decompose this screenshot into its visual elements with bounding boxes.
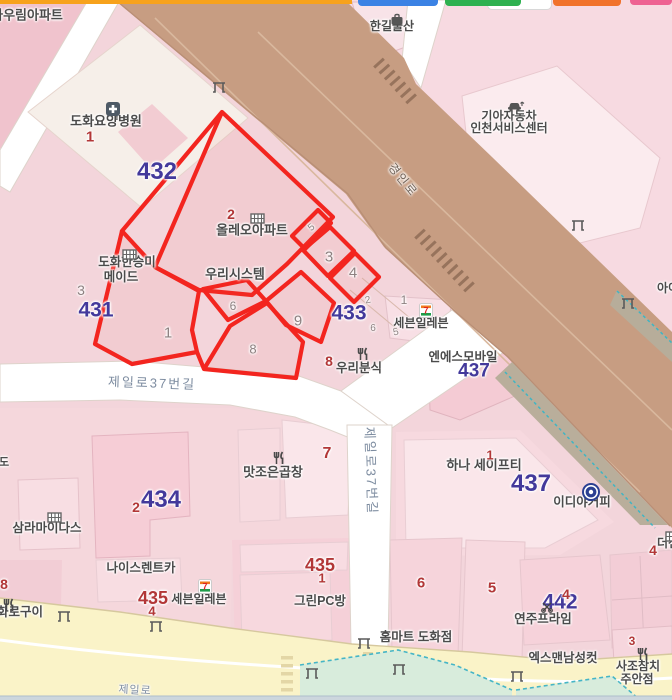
homemart-dohwa[interactable]: 홈마트 도화점	[380, 631, 452, 644]
block-434: 434	[141, 488, 181, 512]
bldg-4-435: 4	[148, 605, 155, 618]
matjoeun-gopchang[interactable]: 맛조은곱창	[243, 466, 303, 479]
road-gyeongin: 경인로	[386, 161, 420, 199]
road-jeil37-h: 제일로37번길	[108, 375, 197, 391]
green-pc-bang[interactable]: 그린PC방	[294, 595, 346, 608]
map-canvas[interactable]: 나우림아파트한길물산도화요양병원기아자동차인천서비스센터올레오아파트우리시스템도…	[0, 0, 672, 700]
maid[interactable]: 메이드	[104, 271, 139, 284]
bldg-2-olleo: 2	[227, 207, 235, 221]
parcel-6-small: 6	[370, 324, 376, 334]
bldg-2-434: 2	[132, 500, 140, 514]
block-433: 433	[331, 303, 366, 324]
bldg-4-442: 4	[562, 587, 570, 601]
bldg-3-sajo: 3	[629, 635, 636, 647]
kia-motors-line2[interactable]: 인천서비스센터	[470, 122, 547, 134]
sajo-chamchi-line2[interactable]: 주안점	[620, 673, 653, 685]
road-jeil37-v: 제일로37번길	[363, 427, 379, 516]
seven-eleven-south[interactable]: 세븐일레븐	[171, 593, 226, 605]
bldg-1-hospital: 1	[86, 130, 94, 145]
block-431: 431	[78, 300, 113, 321]
bldg-1-hana: 1	[486, 449, 493, 462]
svg-text:7: 7	[202, 582, 207, 592]
parcel-2-small: 2	[364, 296, 372, 307]
bldg-6: 6	[417, 576, 425, 591]
parcel-3-431: 3	[77, 283, 85, 297]
bldg-8-bunsik: 8	[325, 354, 333, 368]
parcel-1: 1	[164, 326, 172, 341]
parcel-8: 8	[249, 343, 256, 356]
block-432: 432	[137, 160, 177, 184]
samra-midas[interactable]: 삼라마이다스	[12, 522, 81, 535]
parcel-1-small: 1	[401, 294, 408, 306]
do-partial[interactable]: 도	[0, 458, 9, 469]
olleo-apartment[interactable]: 올레오아파트	[216, 224, 288, 237]
bldg-8-edge: 8	[0, 577, 8, 591]
xman-mens-cut[interactable]: 엑스맨남성컷	[528, 652, 597, 665]
bldg-1-435: 1	[318, 572, 325, 585]
block-437-a: 437	[458, 362, 490, 381]
bldg-4-thejen: 4	[649, 543, 657, 557]
parcel-4: 4	[349, 266, 357, 281]
parcel-5-small: 5	[392, 328, 400, 339]
ai-partial[interactable]: 아이	[657, 282, 672, 294]
road-jeil-partial: 제일로	[118, 685, 152, 698]
map-labels-layer: 나우림아파트한길물산도화요양병원기아자동차인천서비스센터올레오아파트우리시스템도…	[0, 0, 672, 700]
parcel-9: 9	[294, 314, 302, 329]
woori-system[interactable]: 우리시스템	[205, 268, 265, 281]
yeonju-prime[interactable]: 연주프라임	[514, 613, 572, 626]
sajo-chamchi-line1[interactable]: 사조참치	[616, 660, 660, 672]
bldg-5: 5	[488, 581, 496, 596]
block-437-b: 437	[511, 472, 551, 496]
woori-bunsik[interactable]: 우리분식	[336, 362, 382, 375]
parcel-5-sliver: 5	[307, 222, 318, 233]
seven-eleven-north[interactable]: 세븐일레븐	[393, 317, 448, 329]
bldg-7: 7	[323, 446, 332, 462]
naurim-apartment[interactable]: 나우림아파트	[0, 9, 63, 22]
svg-text:7: 7	[423, 306, 428, 316]
nice-rentcar[interactable]: 나이스렌트카	[106, 562, 175, 575]
parcel-6: 6	[230, 300, 237, 312]
parcel-3: 3	[325, 250, 333, 265]
